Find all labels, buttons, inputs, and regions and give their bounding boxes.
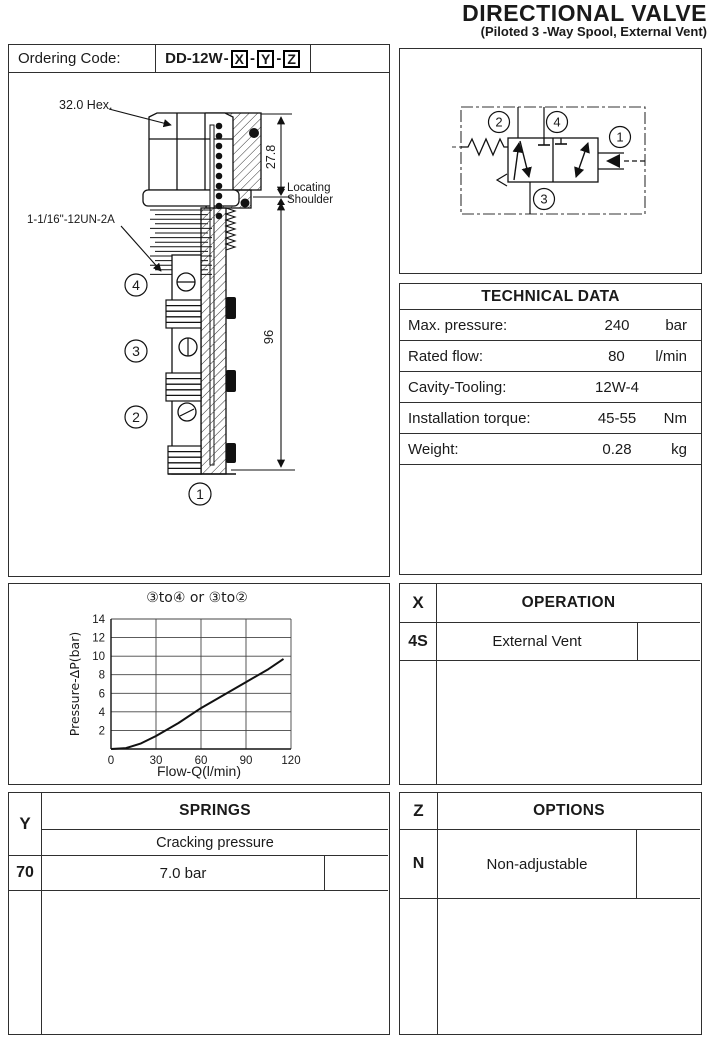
chart-x-axis-label: Flow-Q(l/min) <box>157 763 241 779</box>
schematic-port-1: 1 <box>616 130 623 145</box>
locating-shoulder-line2: Shoulder <box>287 194 333 206</box>
valve-lower-body <box>201 208 236 474</box>
page-title: DIRECTIONAL VALVE <box>462 0 707 27</box>
ordering-code-value: DD-12W-X-Y-Z <box>156 45 311 72</box>
row-unit: Nm <box>656 410 701 427</box>
hex-size-label: 32.0 Hex. <box>59 98 113 112</box>
springs-code-header: Y <box>9 793 41 856</box>
row-unit: bar <box>656 317 701 334</box>
chart-title: ③to④ or ③to② <box>146 590 248 606</box>
chart-tick-labels: 24681012140306090120 <box>92 614 300 767</box>
springs-main-column: SPRINGS Cracking pressure 7.0 bar <box>42 793 388 1034</box>
valve-cross-section-drawing: 4 3 2 1 32.0 Hex. 1-1/16"-12UN-2A 27 <box>9 73 388 575</box>
operation-code-header: X <box>400 584 436 623</box>
operation-row-code: 4S <box>400 623 436 661</box>
table-row: Cavity-Tooling: 12W-4 <box>400 372 701 403</box>
springs-table: Y 70 SPRINGS Cracking pressure 7.0 bar <box>8 792 390 1035</box>
port-2-marker: 2 <box>132 409 140 425</box>
datasheet-page: DIRECTIONAL VALVE (Piloted 3 -Way Spool,… <box>0 0 711 1039</box>
spool-positions <box>497 138 598 186</box>
options-code-header: Z <box>400 793 437 830</box>
ordering-code-dash: - <box>250 50 255 67</box>
technical-data-title: TECHNICAL DATA <box>400 284 701 310</box>
springs-row-label: 7.0 bar <box>42 856 324 890</box>
ordering-code-x-box: X <box>231 50 248 68</box>
springs-subtitle: Cracking pressure <box>42 830 388 856</box>
schematic-section: 2 4 1 3 <box>399 48 702 274</box>
options-title: OPTIONS <box>438 793 700 830</box>
port-3-marker: 3 <box>132 343 140 359</box>
operation-main-column: OPERATION External Vent <box>437 584 700 784</box>
svg-text:120: 120 <box>281 755 300 767</box>
technical-data-table: TECHNICAL DATA Max. pressure: 240 bar Ra… <box>399 283 702 575</box>
performance-chart-section: ③to④ or ③to② 24681012140306090120 Pressu… <box>8 583 390 785</box>
ordering-code-y-box: Y <box>257 50 274 68</box>
table-row: 7.0 bar <box>42 856 388 891</box>
spring-symbol <box>461 139 508 155</box>
operation-code-column: X 4S <box>400 584 437 784</box>
schematic-port-4: 4 <box>553 115 560 130</box>
ordering-code-dash: - <box>276 50 281 67</box>
pilot-flow-arrow <box>606 154 620 168</box>
svg-text:2: 2 <box>99 725 105 737</box>
springs-row-empty-cell <box>324 856 388 890</box>
schematic-port-2: 2 <box>495 115 502 130</box>
row-label: Installation torque: <box>400 410 578 427</box>
table-row: External Vent <box>437 623 700 661</box>
dimension-96: 96 <box>231 203 295 470</box>
options-main-column: OPTIONS Non-adjustable <box>438 793 700 1034</box>
operation-title: OPERATION <box>437 584 700 623</box>
thread-spec-label: 1-1/16"-12UN-2A <box>27 214 115 226</box>
springs-code-column: Y 70 <box>9 793 42 1034</box>
operation-table: X 4S OPERATION External Vent <box>399 583 702 785</box>
row-label: Weight: <box>400 441 578 458</box>
table-row: Weight: 0.28 kg <box>400 434 701 465</box>
springs-title: SPRINGS <box>42 793 388 830</box>
ordering-code-prefix: DD-12W <box>165 50 223 67</box>
row-label: Cavity-Tooling: <box>400 379 578 396</box>
svg-text:90: 90 <box>240 755 253 767</box>
row-value: 12W-4 <box>578 379 656 396</box>
row-value: 45-55 <box>578 410 656 427</box>
operation-row-empty-cell <box>637 623 700 660</box>
flow-chart-svg: ③to④ or ③to② 24681012140306090120 Pressu… <box>9 584 388 783</box>
ordering-code-empty-cell <box>311 45 389 72</box>
page-subtitle: (Piloted 3 -Way Spool, External Vent) <box>481 24 707 39</box>
row-unit: l/min <box>655 348 701 365</box>
port-4-marker: 4 <box>132 277 140 293</box>
svg-text:8: 8 <box>99 670 105 682</box>
row-unit: kg <box>656 441 701 458</box>
options-row-empty-cell <box>636 830 700 898</box>
svg-text:12: 12 <box>92 633 105 645</box>
svg-text:4: 4 <box>99 707 106 719</box>
table-row: Rated flow: 80 l/min <box>400 341 701 372</box>
ordering-code-z-box: Z <box>283 50 300 68</box>
options-table: Z N OPTIONS Non-adjustable <box>399 792 702 1035</box>
options-row-code: N <box>400 830 437 899</box>
svg-text:0: 0 <box>108 755 114 767</box>
schematic-port-3: 3 <box>540 192 547 207</box>
chart-grid <box>111 619 291 749</box>
dim-upper-text: 27.8 <box>264 145 278 169</box>
table-row: Max. pressure: 240 bar <box>400 310 701 341</box>
ordering-code-row: Ordering Code: DD-12W-X-Y-Z <box>9 45 389 73</box>
locating-shoulder-callout: Locating Shoulder <box>277 182 333 206</box>
row-label: Rated flow: <box>400 348 578 365</box>
dim-overall-text: 96 <box>261 330 276 344</box>
chart-curve <box>111 659 284 749</box>
chart-y-axis-label: Pressure-ΔP(bar) <box>67 632 82 736</box>
hex-nut <box>143 113 239 206</box>
drawing-section: Ordering Code: DD-12W-X-Y-Z <box>8 44 390 577</box>
ordering-code-dash: - <box>224 50 229 67</box>
port-1-marker: 1 <box>196 486 204 502</box>
row-value: 240 <box>578 317 656 334</box>
svg-text:10: 10 <box>92 651 105 663</box>
options-row-label: Non-adjustable <box>438 830 636 898</box>
seal-bands <box>166 300 201 474</box>
row-label: Max. pressure: <box>400 317 578 334</box>
svg-text:6: 6 <box>99 688 105 700</box>
row-value: 0.28 <box>578 441 656 458</box>
table-row: Non-adjustable <box>438 830 700 899</box>
pilot-arrowhead <box>497 174 507 186</box>
svg-text:14: 14 <box>92 614 105 626</box>
operation-row-label: External Vent <box>437 623 637 660</box>
locating-shoulder-line1: Locating <box>287 182 330 194</box>
springs-row-code: 70 <box>9 856 41 891</box>
row-value: 80 <box>578 348 656 365</box>
table-row: Installation torque: 45-55 Nm <box>400 403 701 434</box>
ordering-code-label: Ordering Code: <box>9 45 156 72</box>
hydraulic-schematic-symbol: 2 4 1 3 <box>400 49 700 272</box>
options-code-column: Z N <box>400 793 438 1034</box>
